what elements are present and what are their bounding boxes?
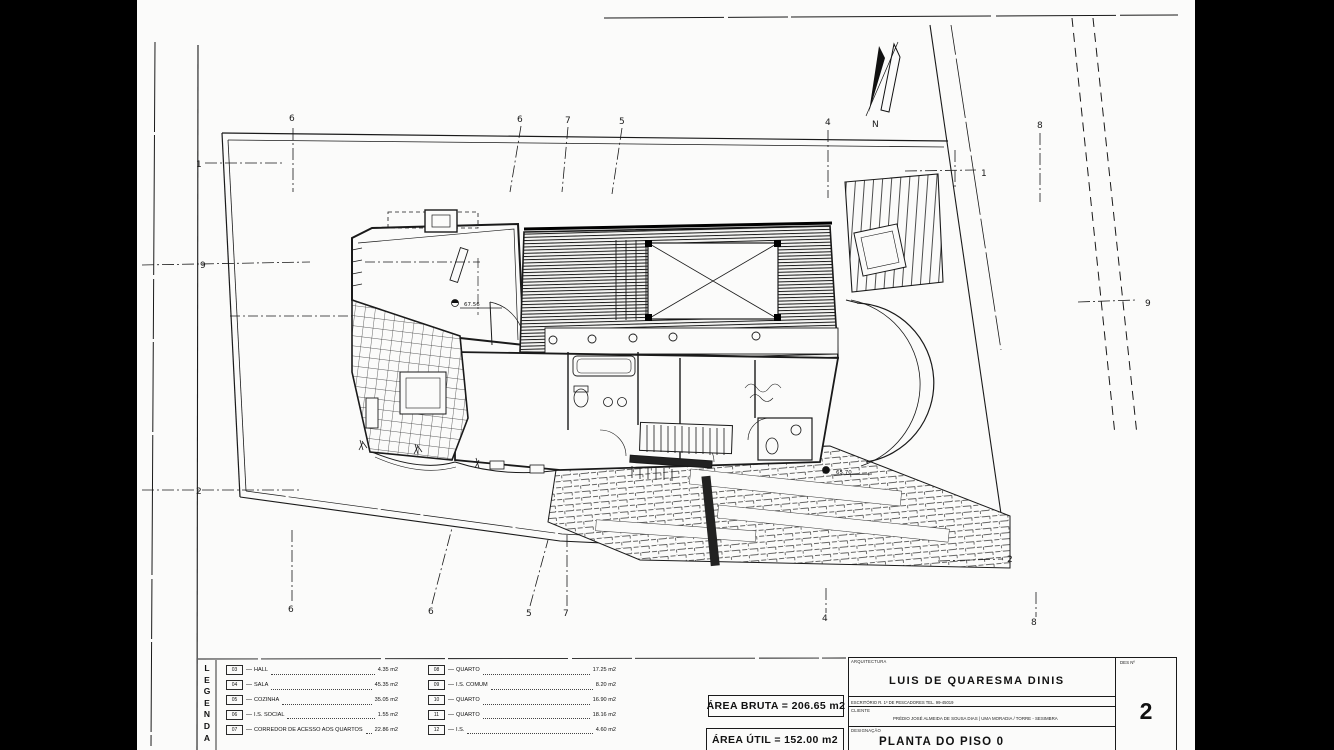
legend-room-code: 06	[226, 710, 243, 720]
legend-room-label: HALL	[254, 667, 268, 673]
legend-dash: —	[448, 712, 454, 718]
client-label: CLIENTE	[851, 708, 870, 713]
legend-row: 05—COZINHA35.05 m2	[226, 693, 398, 708]
legend-leader-dots	[271, 681, 371, 690]
legend-room-area: 45.35 m2	[375, 682, 398, 688]
gross-area-box: ÁREA BRUTA = 206.65 m2	[708, 695, 844, 717]
title-block-left: ARQUITECTURA LUIS DE QUARESMA DINIS ESCR…	[849, 658, 1116, 750]
sheet-number: 2	[1116, 698, 1176, 725]
axis-marker-label: 6	[428, 607, 434, 617]
axis-marker-label: 9	[200, 261, 206, 271]
axis-marker-label: 1	[196, 160, 202, 170]
spot-elevation-value: 67.56	[464, 302, 480, 308]
legend-leader-dots	[483, 695, 590, 704]
legend-room-code: 11	[428, 710, 445, 720]
legend-room-code: 05	[226, 695, 243, 705]
legend-room-area: 17.25 m2	[593, 667, 616, 673]
legend-room-code: 04	[226, 680, 243, 690]
legend-room-area: 18.16 m2	[593, 712, 616, 718]
legend-row: 03—HALL4.35 m2	[226, 663, 398, 678]
title-block: ARQUITECTURA LUIS DE QUARESMA DINIS ESCR…	[848, 657, 1177, 750]
legend-leader-dots	[282, 695, 372, 704]
legend-leader-dots	[483, 666, 590, 675]
legend-dash: —	[246, 727, 252, 733]
legend-room-code: 08	[428, 665, 445, 675]
legend-room-code: 10	[428, 695, 445, 705]
axis-marker-label: 9	[1145, 299, 1151, 309]
legend-room-code: 07	[226, 725, 243, 735]
office-line: ESCRITÓRIO R. 1º DE PESCADORES TEL. 99-4…	[851, 700, 953, 705]
client-row: CLIENTE PRÉDIO JOSÉ ALMEIDA DE SOUSA DIA…	[849, 706, 1115, 726]
legend-column: 03—HALL4.35 m204—SALA45.35 m205—COZINHA3…	[226, 663, 398, 737]
architect-name: LUIS DE QUARESMA DINIS	[889, 675, 1065, 687]
legend-room-code: 03	[226, 665, 243, 675]
axis-marker-label: 1	[981, 169, 987, 179]
legend-room-area: 16.90 m2	[593, 697, 616, 703]
axis-marker-label: 4	[822, 614, 828, 624]
legend-room-area: 4.60 m2	[596, 727, 616, 733]
legend-room-code: 12	[428, 725, 445, 735]
legend-room-area: 22.86 m2	[375, 727, 398, 733]
axis-marker-label: 6	[288, 605, 294, 615]
legend-row: 09—I.S. COMUM8.20 m2	[428, 678, 616, 693]
sheet-number-cell: DES Nº 2	[1116, 658, 1176, 750]
legend-room-label: SALA	[254, 682, 268, 688]
legend-room-area: 8.20 m2	[596, 682, 616, 688]
legend-room-code: 09	[428, 680, 445, 690]
axis-marker-label: 7	[565, 116, 571, 126]
legend-room-area: 1.55 m2	[378, 712, 398, 718]
legend-room-label: CORREDOR DE ACESSO AOS QUARTOS	[254, 727, 363, 733]
legend-dash: —	[246, 667, 252, 673]
legend: 03—HALL4.35 m204—SALA45.35 m205—COZINHA3…	[226, 663, 616, 737]
legend-row: 04—SALA45.35 m2	[226, 678, 398, 693]
architect-row: ARQUITECTURA LUIS DE QUARESMA DINIS	[849, 658, 1115, 696]
spot-elevation-value: 65.70	[836, 470, 852, 476]
legend-room-label: QUARTO	[456, 712, 480, 718]
axis-marker-label: 2	[196, 487, 202, 497]
axis-marker-label: 4	[825, 118, 831, 128]
legend-leader-dots	[467, 725, 592, 734]
legend-room-label: QUARTO	[456, 667, 480, 673]
legend-leader-dots	[366, 725, 372, 734]
legend-column: 08—QUARTO17.25 m209—I.S. COMUM8.20 m210—…	[428, 663, 616, 737]
legend-row: 10—QUARTO16.90 m2	[428, 693, 616, 708]
legend-title-letter: G	[200, 686, 214, 698]
legend-title-letter: N	[200, 709, 214, 721]
legend-title-letter: L	[200, 663, 214, 675]
scanned-drawing-page: 667548192192665748N 67.5665.70 LEGENDA 0…	[0, 0, 1334, 750]
legend-title-letter: E	[200, 698, 214, 710]
legend-leader-dots	[483, 710, 590, 719]
legend-leader-dots	[287, 710, 374, 719]
architect-label: ARQUITECTURA	[851, 659, 886, 664]
legend-dash: —	[448, 667, 454, 673]
axis-marker-label: 6	[289, 114, 295, 124]
legend-room-label: COZINHA	[254, 697, 279, 703]
axis-marker-label: 8	[1037, 121, 1043, 131]
legend-title-letter: A	[200, 733, 214, 745]
legend-row: 12—I.S.4.60 m2	[428, 722, 616, 737]
axis-marker-label: 6	[517, 115, 523, 125]
net-area-text: ÁREA ÚTIL = 152.00 m2	[712, 734, 838, 746]
north-arrow-icon	[866, 42, 900, 116]
legend-title-letter: D	[200, 721, 214, 733]
axis-marker-label: 2	[1007, 555, 1013, 565]
net-area-box: ÁREA ÚTIL = 152.00 m2	[706, 728, 844, 750]
sheet-number-label: DES Nº	[1120, 660, 1135, 665]
legend-dash: —	[246, 712, 252, 718]
legend-room-label: I.S. COMUM	[456, 682, 488, 688]
legend-dash: —	[448, 727, 454, 733]
legend-dash: —	[448, 682, 454, 688]
legend-leader-dots	[491, 681, 593, 690]
bedroom-strip	[455, 352, 838, 470]
legend-dash: —	[246, 682, 252, 688]
legend-dash: —	[448, 697, 454, 703]
wood-deck	[520, 223, 838, 358]
legend-row: 07—CORREDOR DE ACESSO AOS QUARTOS22.86 m…	[226, 722, 398, 737]
designation-row: DESIGNAÇÃO PLANTA DO PISO 0	[849, 726, 1115, 750]
legend-room-label: QUARTO	[456, 697, 480, 703]
drawing-title: PLANTA DO PISO 0	[879, 736, 1004, 748]
exterior-stair	[845, 174, 943, 292]
legend-room-area: 35.05 m2	[375, 697, 398, 703]
legend-row: 11—QUARTO18.16 m2	[428, 707, 616, 722]
axis-marker-label: N	[872, 120, 879, 130]
office-row: ESCRITÓRIO R. 1º DE PESCADORES TEL. 99-4…	[849, 696, 1115, 706]
legend-room-area: 4.35 m2	[378, 667, 398, 673]
legend-dash: —	[246, 697, 252, 703]
curved-wall	[846, 300, 934, 466]
legend-row: 06—I.S. SOCIAL1.55 m2	[226, 707, 398, 722]
gross-area-text: ÁREA BRUTA = 206.65 m2	[707, 700, 846, 712]
axis-marker-label: 5	[526, 609, 532, 619]
legend-room-label: I.S.	[456, 727, 464, 733]
legend-row: 08—QUARTO17.25 m2	[428, 663, 616, 678]
axis-marker-label: 8	[1031, 618, 1037, 628]
axis-marker-label: 7	[563, 609, 569, 619]
axis-marker-label: 5	[619, 117, 625, 127]
legend-title-vertical: LEGENDA	[200, 663, 214, 744]
designation-label: DESIGNAÇÃO	[851, 728, 881, 733]
client-name: PRÉDIO JOSÉ ALMEIDA DE SOUSA DIAS | UMA …	[893, 716, 1058, 721]
legend-title-letter: E	[200, 675, 214, 687]
road-boundary-lines	[1072, 18, 1137, 435]
floor-plan-drawing: 667548192192665748N 67.5665.70	[0, 0, 1334, 750]
legend-room-label: I.S. SOCIAL	[254, 712, 284, 718]
legend-leader-dots	[271, 666, 375, 675]
